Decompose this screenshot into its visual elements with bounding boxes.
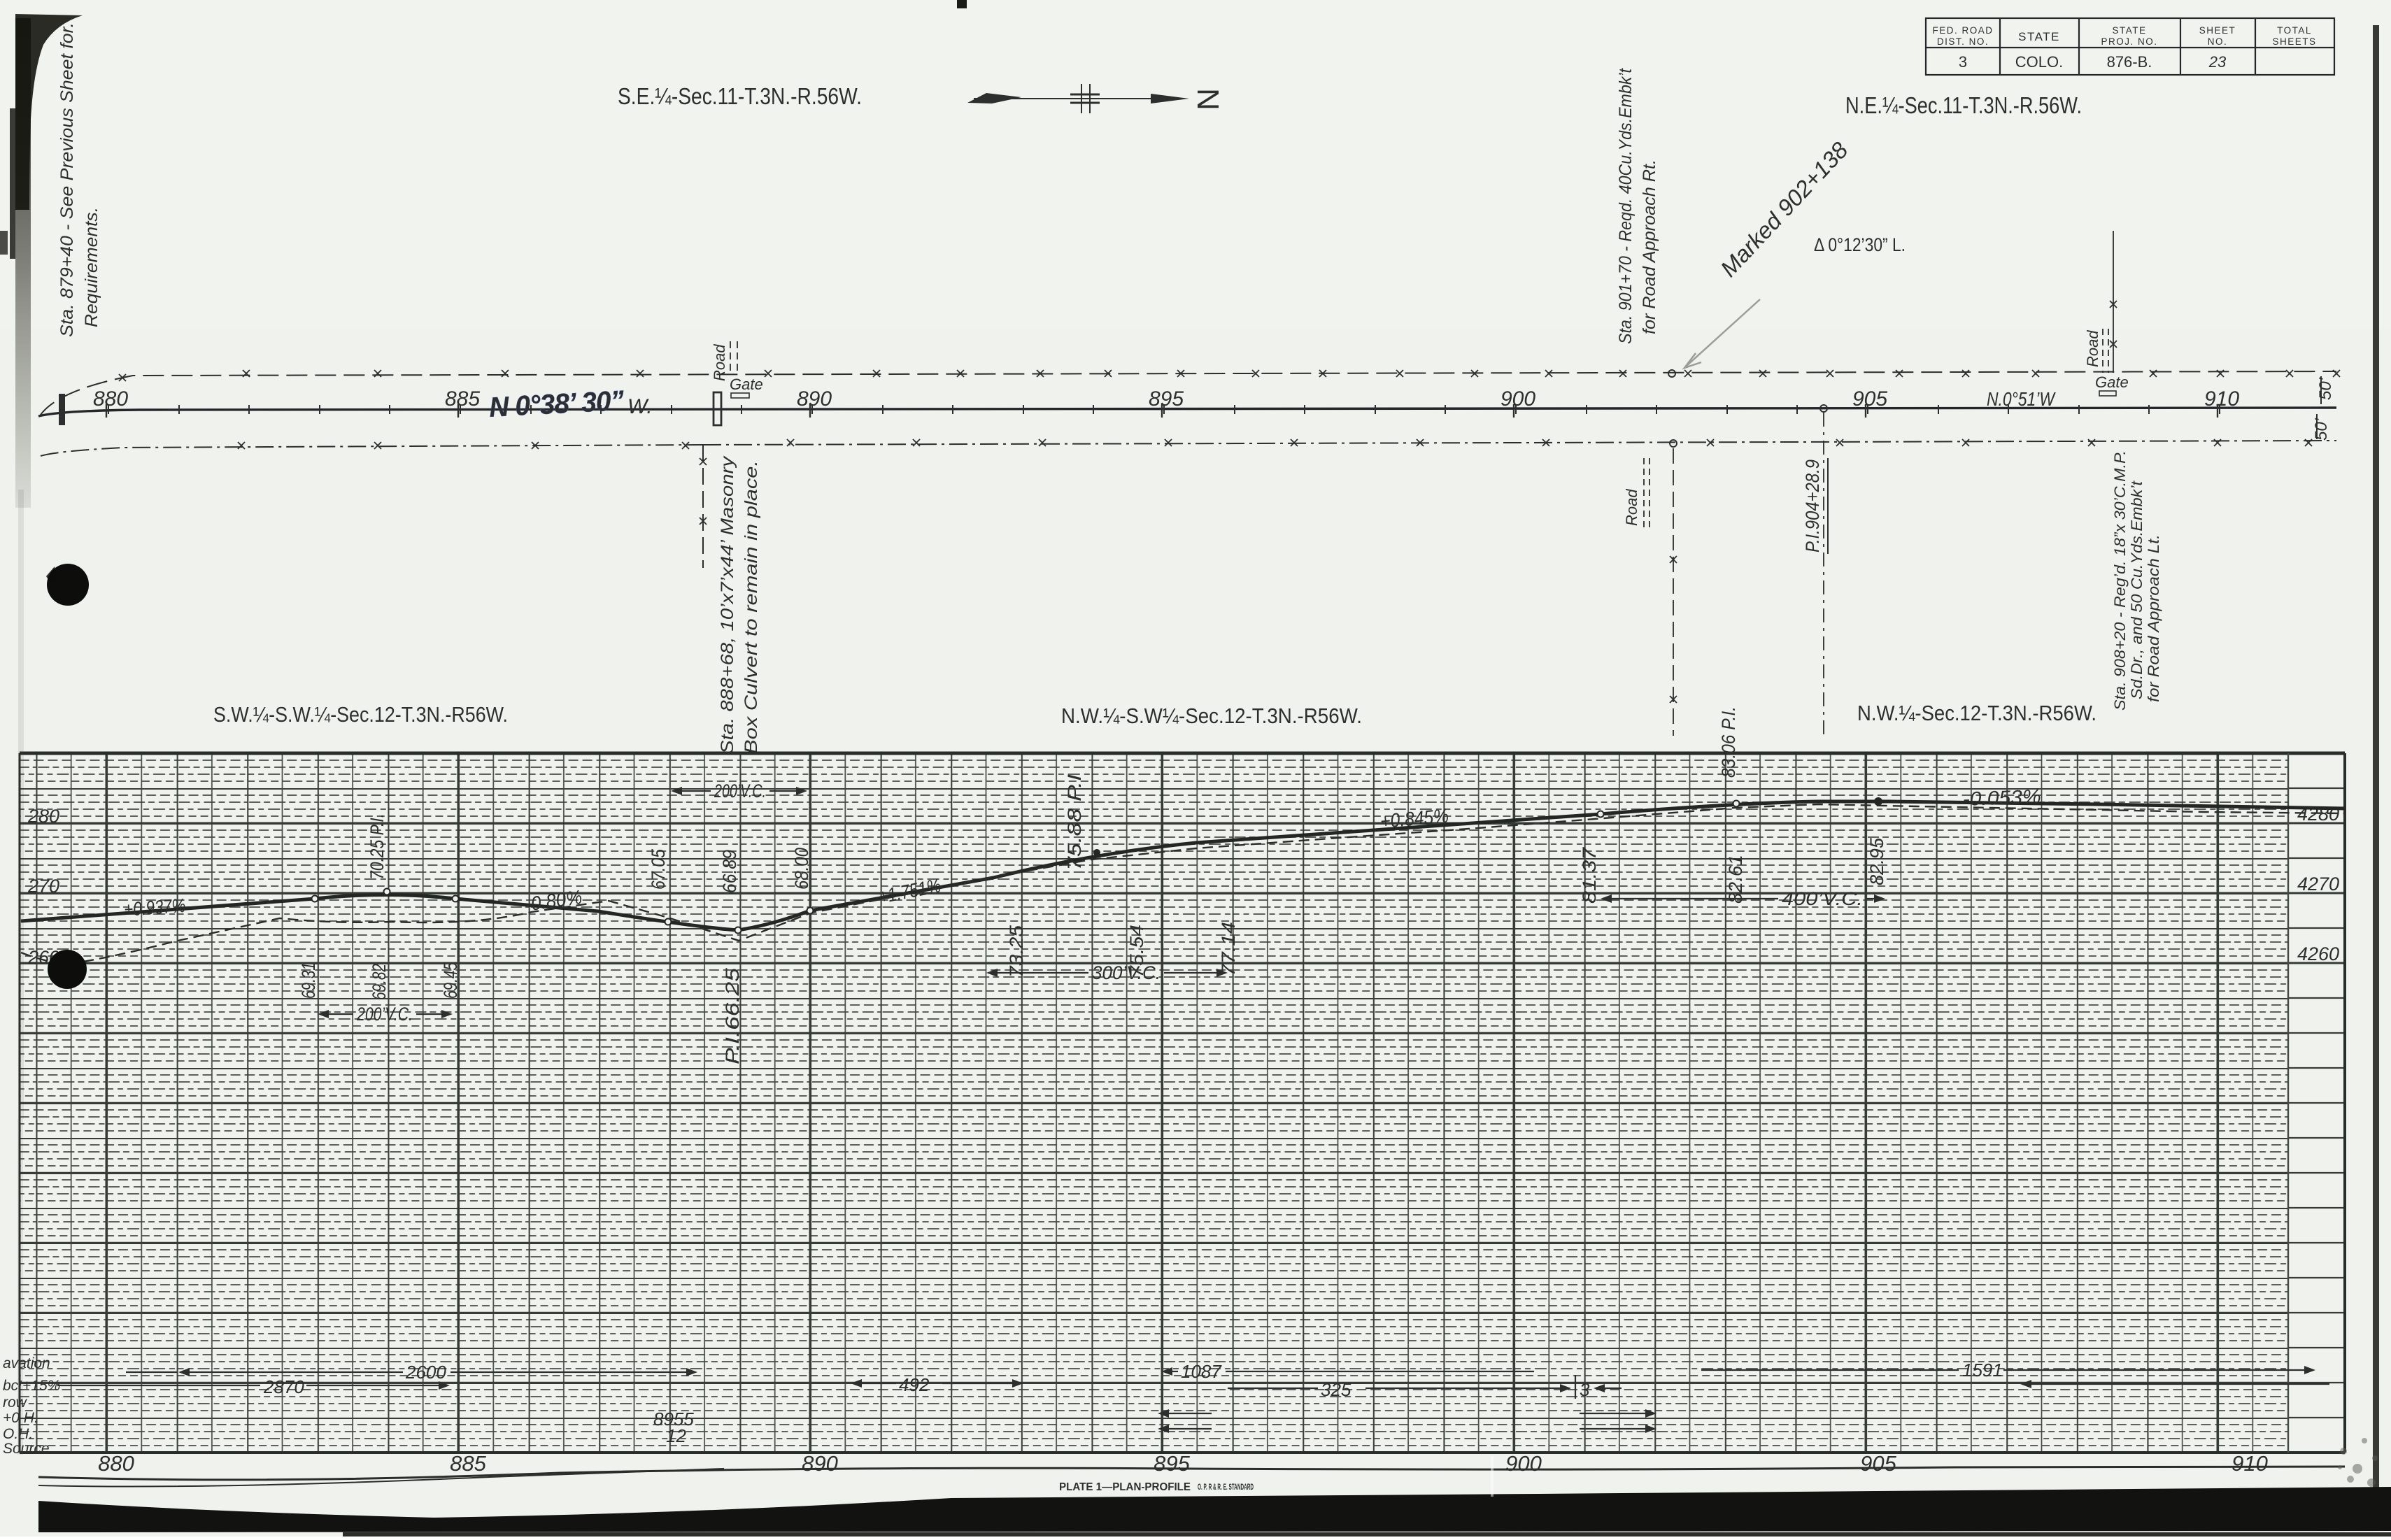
- svg-text:2870: 2870: [263, 1376, 304, 1397]
- svg-text:Sta. 908+20 - Reg’d. 18”x 30’C: Sta. 908+20 - Reg’d. 18”x 30’C.M.P.: [2111, 450, 2129, 711]
- svg-text:12: 12: [666, 1425, 686, 1446]
- svg-text:81.37: 81.37: [1579, 847, 1600, 904]
- svg-text:bct+15%: bct+15%: [3, 1378, 60, 1394]
- svg-text:270: 270: [27, 876, 59, 897]
- svg-text:N.W.¼-S.W¼-Sec.12-T.3N.-R56W.: N.W.¼-S.W¼-Sec.12-T.3N.-R56W.: [1061, 704, 1362, 728]
- svg-text:Road: Road: [711, 344, 728, 381]
- svg-text:Road: Road: [2084, 330, 2101, 367]
- svg-text:STATE: STATE: [2112, 25, 2146, 36]
- svg-text:905: 905: [1852, 387, 1887, 411]
- svg-text:Gate: Gate: [2095, 373, 2129, 391]
- svg-text:COLO.: COLO.: [2015, 53, 2063, 71]
- svg-text:Requirements.: Requirements.: [82, 207, 101, 327]
- svg-text:400’V.C.: 400’V.C.: [1782, 888, 1863, 909]
- svg-text:68.00: 68.00: [791, 848, 812, 890]
- svg-text:200’V.C.: 200’V.C.: [714, 780, 766, 801]
- svg-text:4260: 4260: [2297, 943, 2339, 964]
- svg-text:69.82: 69.82: [369, 964, 390, 1000]
- svg-text:Gate: Gate: [730, 376, 763, 393]
- svg-text:S.E.¼-Sec.11-T.3N.-R.56W.: S.E.¼-Sec.11-T.3N.-R.56W.: [618, 83, 862, 109]
- svg-text:Sta. 879+40 - See Previous She: Sta. 879+40 - See Previous Sheet for.: [57, 22, 77, 337]
- svg-text:910: 910: [2204, 387, 2239, 411]
- svg-text:82.95: 82.95: [1866, 837, 1887, 885]
- svg-text:3: 3: [1959, 53, 1967, 71]
- svg-text:3: 3: [1580, 1379, 1590, 1400]
- svg-text:for Road Approach Rt.: for Road Approach Rt.: [1640, 159, 1659, 334]
- svg-text:73.25: 73.25: [1006, 925, 1027, 978]
- svg-text:-0.053%: -0.053%: [1962, 785, 2041, 810]
- svg-text:N.0°51’W: N.0°51’W: [1987, 388, 2056, 410]
- svg-text:Sta. 901+70 - Reqd. 40Cu.Yds.E: Sta. 901+70 - Reqd. 40Cu.Yds.Embk’t: [1616, 68, 1636, 344]
- svg-text:W.: W.: [627, 395, 653, 418]
- svg-text:890: 890: [797, 387, 832, 411]
- svg-text:83.06 P.I.: 83.06 P.I.: [1718, 706, 1739, 778]
- svg-text:avation: avation: [3, 1355, 50, 1371]
- svg-text:200’V.C.: 200’V.C.: [356, 1004, 413, 1025]
- svg-text:50’: 50’: [2316, 377, 2335, 400]
- svg-text:for Road Approach Lt.: for Road Approach Lt.: [2145, 534, 2162, 702]
- svg-text:DIST. NO.: DIST. NO.: [1937, 36, 1989, 47]
- svg-text:69.45: 69.45: [440, 962, 461, 999]
- svg-text:4270: 4270: [2297, 874, 2339, 894]
- svg-text:Δ 0°12’30” L.: Δ 0°12’30” L.: [1814, 234, 1906, 255]
- svg-text:Sd.Dr., and 50 Cu.Yds.Embk’t: Sd.Dr., and 50 Cu.Yds.Embk’t: [2128, 480, 2145, 699]
- svg-text:FED. ROAD: FED. ROAD: [1932, 25, 1993, 36]
- svg-text:O. P. R & R. E. STANDARD: O. P. R & R. E. STANDARD: [1198, 1482, 1254, 1492]
- svg-text:910: 910: [2232, 1451, 2268, 1476]
- svg-text:492: 492: [899, 1374, 930, 1395]
- svg-text:66.89: 66.89: [719, 850, 740, 893]
- svg-text:280: 280: [27, 806, 59, 827]
- svg-text:Source: Source: [3, 1441, 50, 1457]
- svg-text:67.05: 67.05: [648, 848, 669, 890]
- svg-text:75.88 P.I: 75.88 P.I: [1064, 773, 1085, 871]
- svg-text:880: 880: [93, 387, 128, 411]
- svg-text:895: 895: [1149, 387, 1184, 411]
- svg-text:Road: Road: [1623, 489, 1640, 526]
- svg-text:905: 905: [1860, 1451, 1896, 1476]
- svg-text:PLATE 1—PLAN-PROFILE: PLATE 1—PLAN-PROFILE: [1059, 1481, 1191, 1493]
- svg-text:70.25 P.I.: 70.25 P.I.: [367, 813, 388, 880]
- svg-text:N: N: [1191, 88, 1225, 110]
- svg-text:S.W.¼-S.W.¼-Sec.12-T.3N.-R56W.: S.W.¼-S.W.¼-Sec.12-T.3N.-R56W.: [213, 702, 508, 727]
- svg-text:N.E.¼-Sec.11-T.3N.-R.56W.: N.E.¼-Sec.11-T.3N.-R.56W.: [1845, 92, 2082, 118]
- svg-text:876-B.: 876-B.: [2107, 53, 2152, 71]
- svg-text:P.I.904+28.9: P.I.904+28.9: [1802, 459, 1823, 552]
- svg-text:1087: 1087: [1181, 1361, 1222, 1382]
- svg-text:895: 895: [1154, 1451, 1190, 1476]
- svg-text:23: 23: [2208, 53, 2227, 71]
- svg-text:77.14: 77.14: [1218, 922, 1239, 976]
- svg-text:PROJ. NO.: PROJ. NO.: [2101, 36, 2157, 47]
- svg-text:NO.: NO.: [2208, 36, 2228, 47]
- svg-text:890: 890: [802, 1451, 838, 1476]
- svg-text:Box Culvert to remain in place: Box Culvert to remain in place.: [742, 460, 761, 754]
- svg-text:TOTAL: TOTAL: [2277, 25, 2312, 36]
- svg-text:1591: 1591: [1962, 1360, 2003, 1381]
- svg-text:row: row: [3, 1395, 28, 1411]
- svg-text:N.W.¼-Sec.12-T.3N.-R56W.: N.W.¼-Sec.12-T.3N.-R56W.: [1857, 701, 2096, 725]
- svg-text:325: 325: [1321, 1379, 1351, 1400]
- svg-text:SHEETS: SHEETS: [2272, 36, 2316, 47]
- svg-text:69.31: 69.31: [298, 962, 319, 999]
- svg-text:STATE: STATE: [2018, 30, 2060, 43]
- svg-text:300’V.C.: 300’V.C.: [1092, 962, 1161, 983]
- svg-text:900: 900: [1505, 1451, 1542, 1476]
- svg-text:880: 880: [98, 1451, 134, 1476]
- svg-text:SHEET: SHEET: [2199, 25, 2236, 36]
- svg-text:Sta. 888+68, 10’x7’x44’ Masonr: Sta. 888+68, 10’x7’x44’ Masonry: [718, 455, 737, 754]
- svg-text:82.61: 82.61: [1725, 855, 1746, 904]
- svg-text:50’: 50’: [2312, 418, 2331, 441]
- svg-text:900: 900: [1500, 387, 1535, 411]
- svg-text:885: 885: [450, 1451, 486, 1476]
- svg-text:2600: 2600: [405, 1362, 446, 1383]
- svg-text:+0.937%: +0.937%: [123, 894, 186, 920]
- svg-text:885: 885: [445, 387, 480, 411]
- svg-text:P.I.66.25: P.I.66.25: [722, 967, 743, 1064]
